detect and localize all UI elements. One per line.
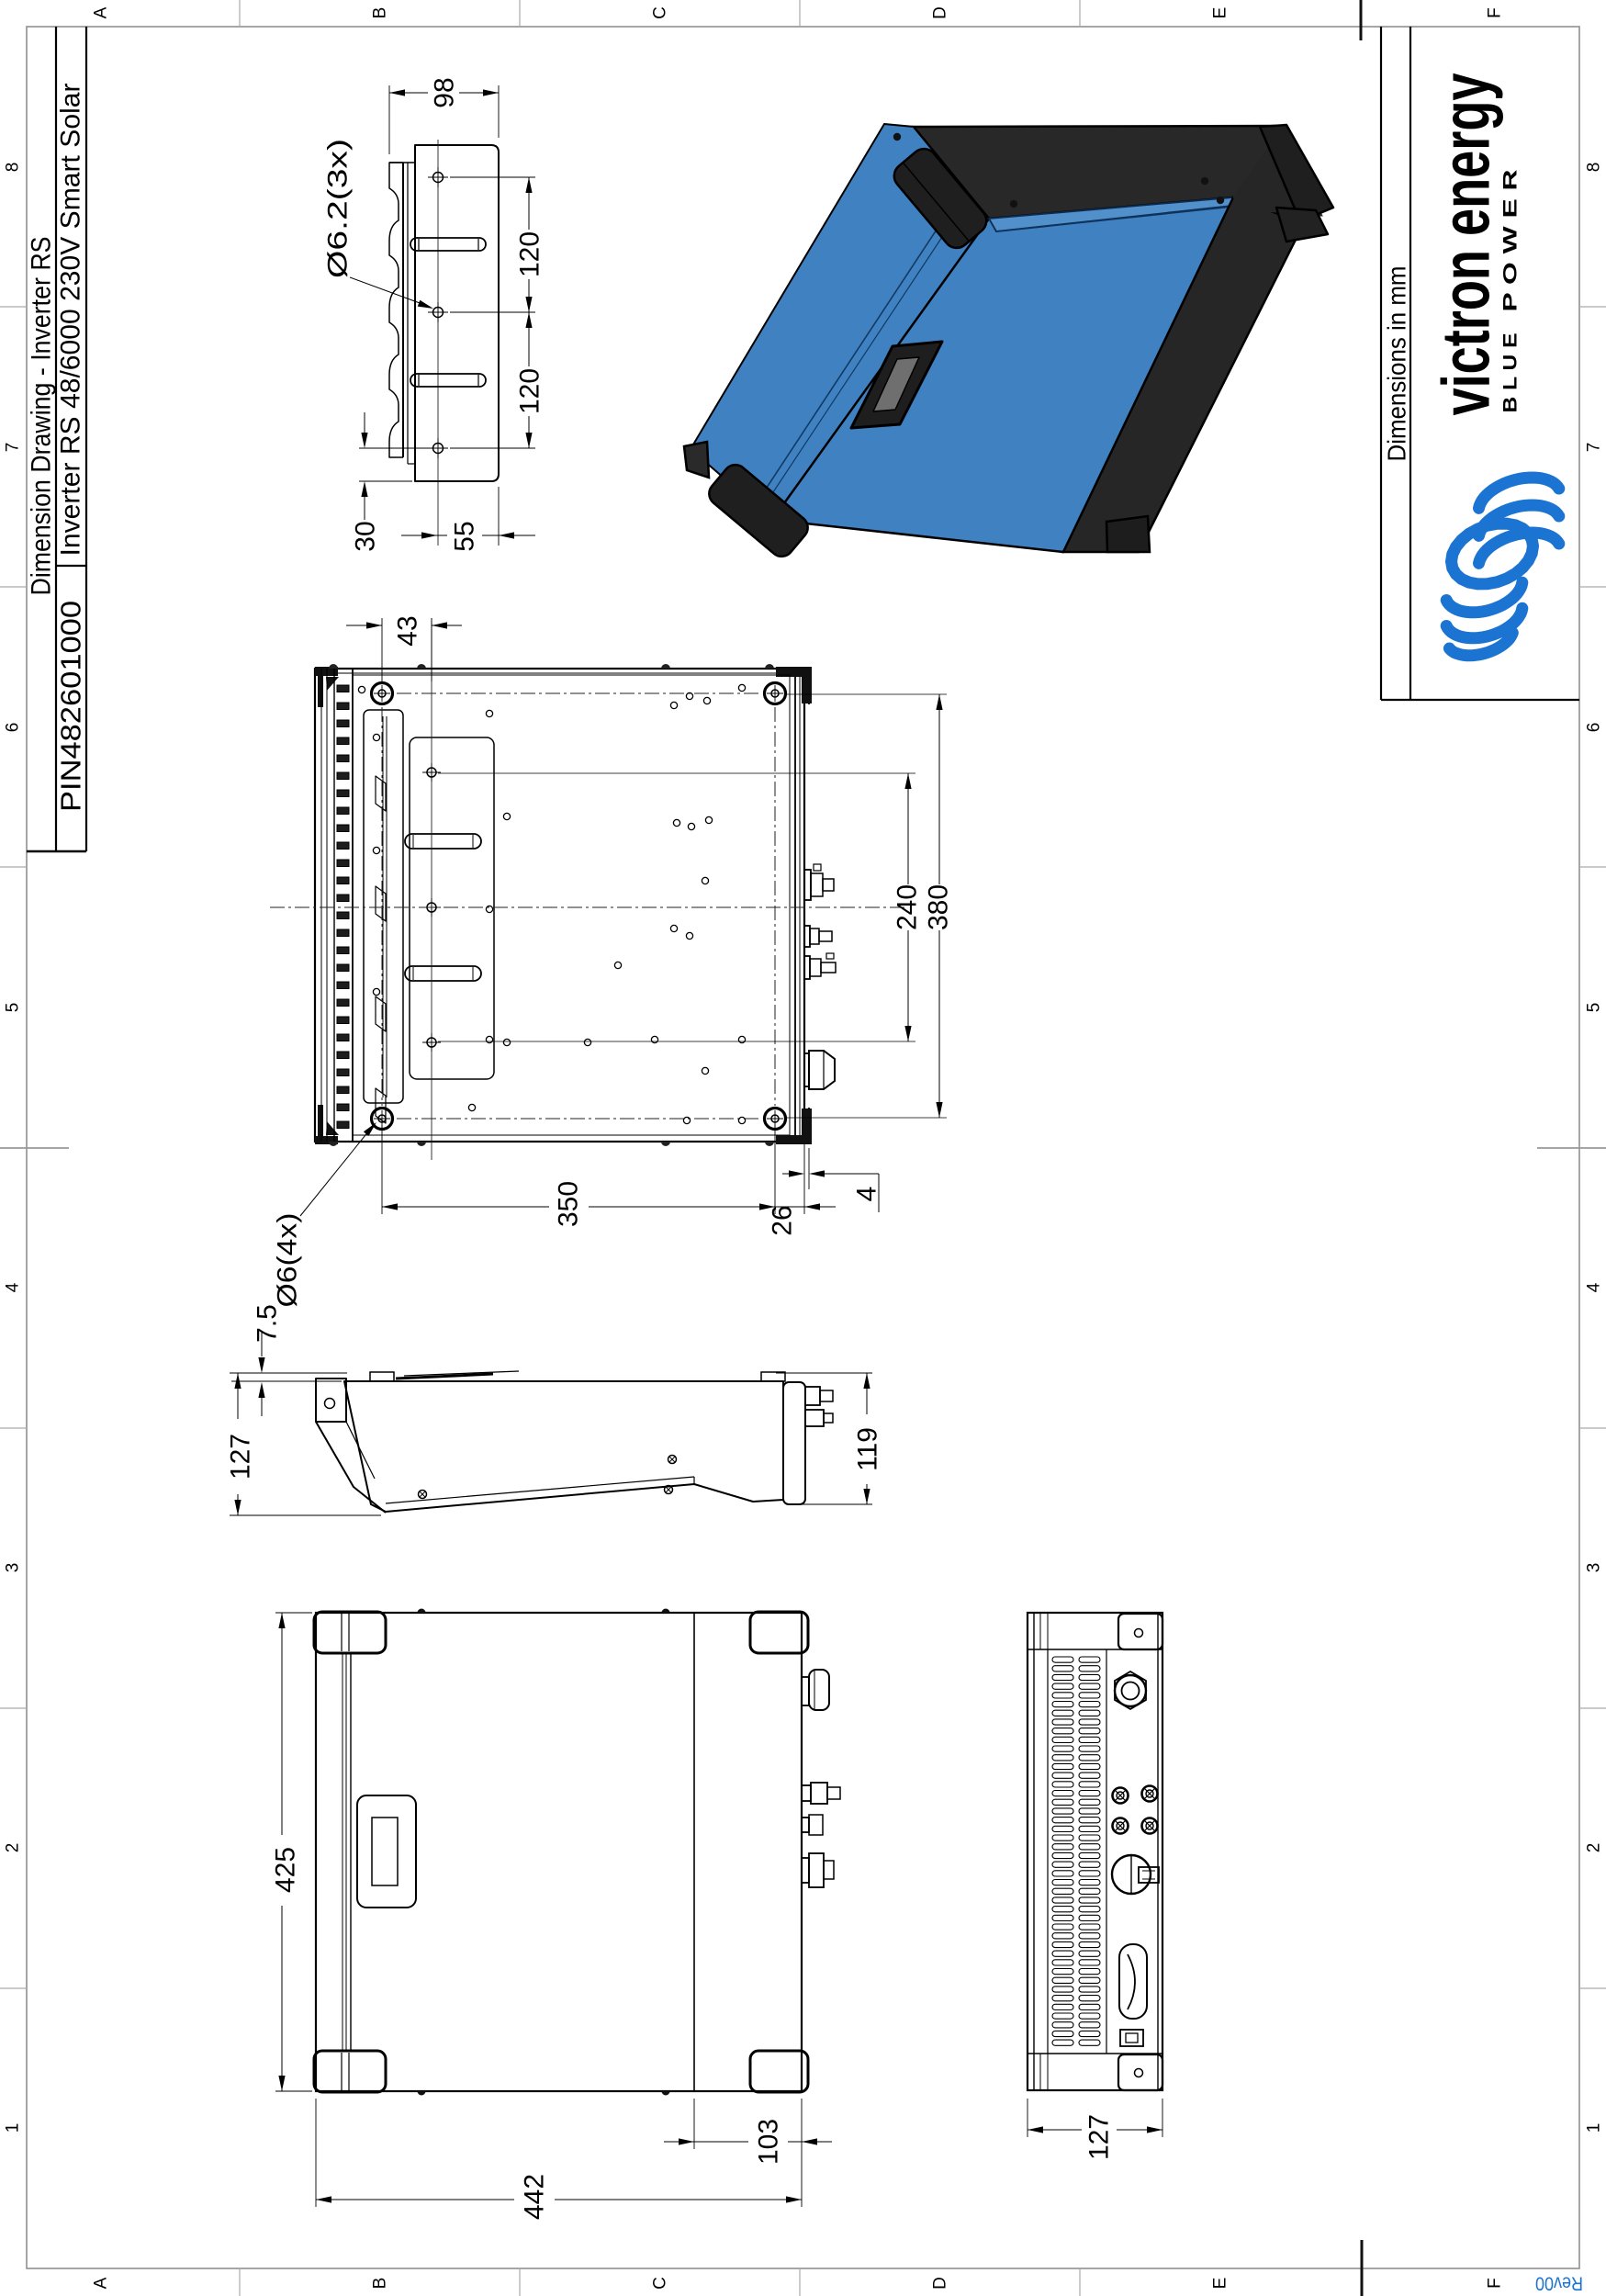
svg-text:C: C: [651, 6, 670, 19]
svg-text:B: B: [371, 2278, 390, 2290]
svg-text:30: 30: [351, 521, 381, 551]
svg-text:7.5: 7.5: [253, 1304, 283, 1343]
svg-text:5: 5: [4, 1003, 23, 1013]
svg-text:1: 1: [1585, 2123, 1604, 2133]
svg-text:D: D: [931, 2277, 950, 2290]
svg-text:P O W E R: P O W E R: [1500, 170, 1522, 312]
svg-text:Rev00: Rev00: [1535, 2273, 1583, 2294]
svg-text:4: 4: [852, 1187, 882, 1202]
svg-text:5: 5: [1585, 1003, 1604, 1013]
svg-text:127: 127: [226, 1434, 256, 1480]
svg-text:380: 380: [924, 884, 954, 930]
svg-text:7: 7: [1585, 443, 1604, 453]
svg-text:6: 6: [1585, 723, 1604, 733]
svg-text:Inverter RS 48/6000 230V Smart: Inverter RS 48/6000 230V Smart Solar: [56, 83, 86, 556]
svg-text:6: 6: [4, 723, 23, 733]
svg-text:8: 8: [1585, 163, 1604, 173]
svg-text:1: 1: [4, 2123, 23, 2133]
svg-text:4: 4: [4, 1282, 23, 1292]
svg-text:PIN482601000: PIN482601000: [55, 601, 87, 812]
svg-text:120: 120: [515, 368, 545, 414]
svg-text:240: 240: [893, 884, 923, 930]
svg-text:26: 26: [768, 1205, 798, 1235]
svg-text:E: E: [1211, 7, 1230, 19]
svg-text:8: 8: [4, 163, 23, 173]
svg-text:103: 103: [754, 2119, 784, 2165]
svg-text:A: A: [92, 6, 111, 18]
svg-text:3: 3: [4, 1563, 23, 1573]
svg-text:119: 119: [853, 1427, 883, 1471]
svg-text:350: 350: [554, 1181, 584, 1227]
svg-text:98: 98: [430, 77, 460, 107]
svg-text:2: 2: [1585, 1843, 1604, 1853]
svg-text:victron energy: victron energy: [1430, 73, 1504, 415]
svg-text:4: 4: [1585, 1282, 1604, 1292]
svg-text:Ø6(4x): Ø6(4x): [273, 1213, 303, 1308]
svg-text:A: A: [92, 2277, 111, 2289]
svg-text:127: 127: [1084, 2114, 1115, 2160]
svg-text:F: F: [1486, 7, 1505, 18]
svg-text:D: D: [931, 6, 950, 19]
svg-text:442: 442: [520, 2174, 550, 2220]
svg-text:Dimension Drawing - Inverter R: Dimension Drawing - Inverter RS: [27, 237, 57, 596]
svg-text:E: E: [1211, 2278, 1230, 2290]
svg-text:55: 55: [450, 521, 480, 551]
svg-text:43: 43: [393, 615, 423, 646]
svg-text:2: 2: [4, 1843, 23, 1853]
svg-text:F: F: [1486, 2278, 1505, 2289]
svg-text:7: 7: [4, 443, 23, 453]
svg-text:Ø6.2(3x): Ø6.2(3x): [323, 139, 354, 278]
svg-text:B: B: [371, 7, 390, 19]
svg-text:B L U E: B L U E: [1500, 333, 1522, 413]
svg-text:120: 120: [515, 231, 545, 277]
svg-text:C: C: [651, 2277, 670, 2290]
svg-text:425: 425: [271, 1847, 301, 1893]
svg-text:Dimensions in mm: Dimensions in mm: [1383, 266, 1411, 462]
svg-text:3: 3: [1585, 1563, 1604, 1573]
